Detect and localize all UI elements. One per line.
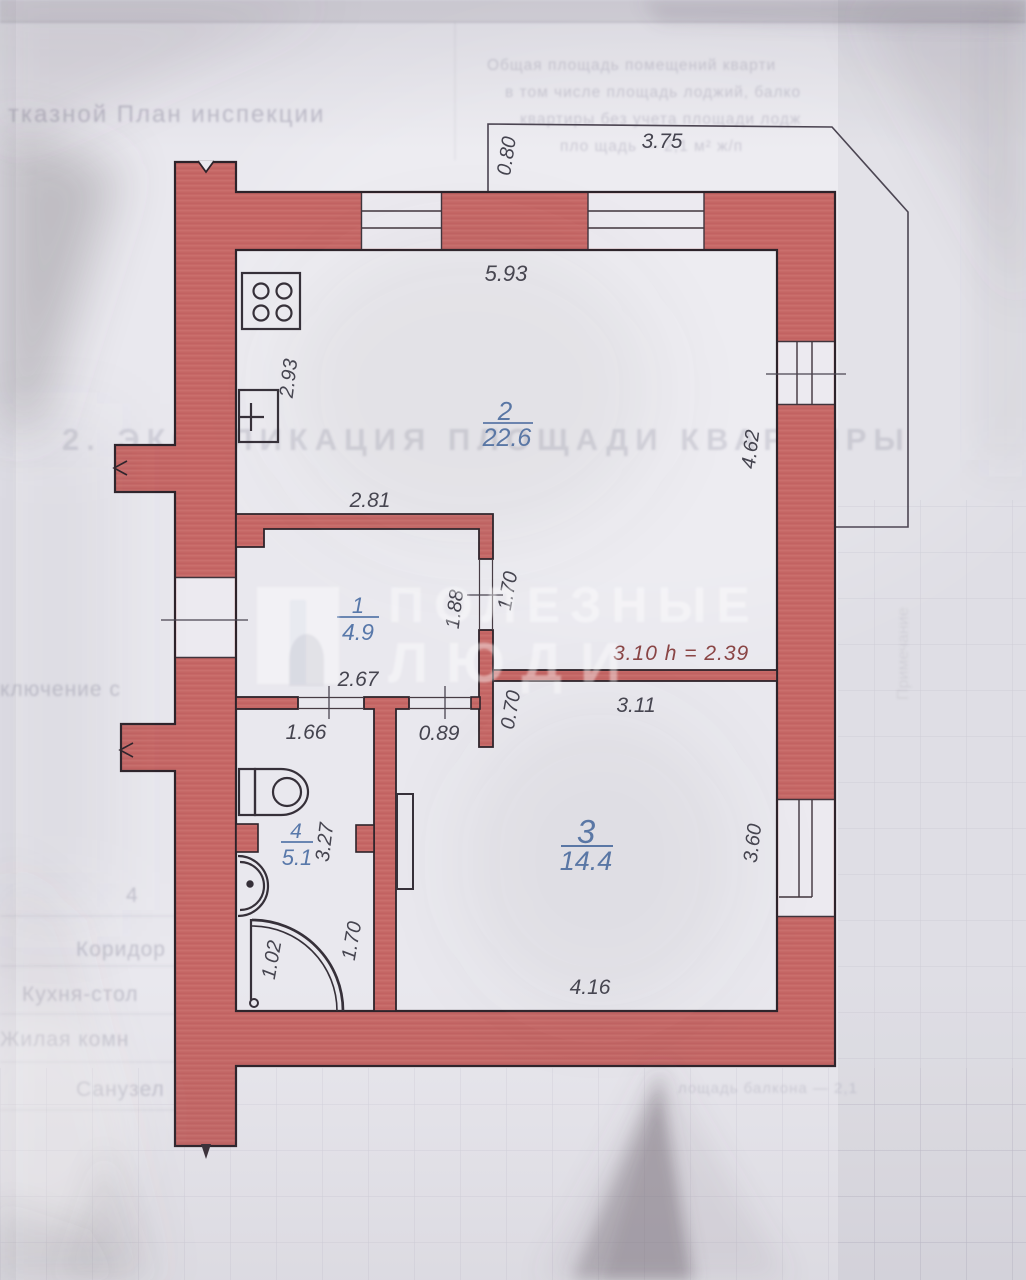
- svg-text:ПОЛЕЗНЫЕ: ПОЛЕЗНЫЕ: [388, 577, 760, 633]
- svg-text:5.1: 5.1: [282, 845, 313, 870]
- svg-text:4: 4: [290, 820, 302, 843]
- svg-text:4: 4: [126, 884, 139, 907]
- svg-text:0.89: 0.89: [419, 722, 460, 745]
- svg-text:2.67: 2.67: [337, 668, 380, 691]
- svg-text:3.60: 3.60: [740, 823, 767, 864]
- svg-text:4.9: 4.9: [342, 619, 374, 645]
- svg-text:1: 1: [352, 593, 364, 618]
- svg-text:1.66: 1.66: [286, 721, 327, 744]
- svg-text:ЛЮДИ: ЛЮДИ: [388, 631, 639, 695]
- svg-text:Коридор: Коридор: [76, 938, 166, 961]
- svg-text:4.62: 4.62: [738, 429, 765, 470]
